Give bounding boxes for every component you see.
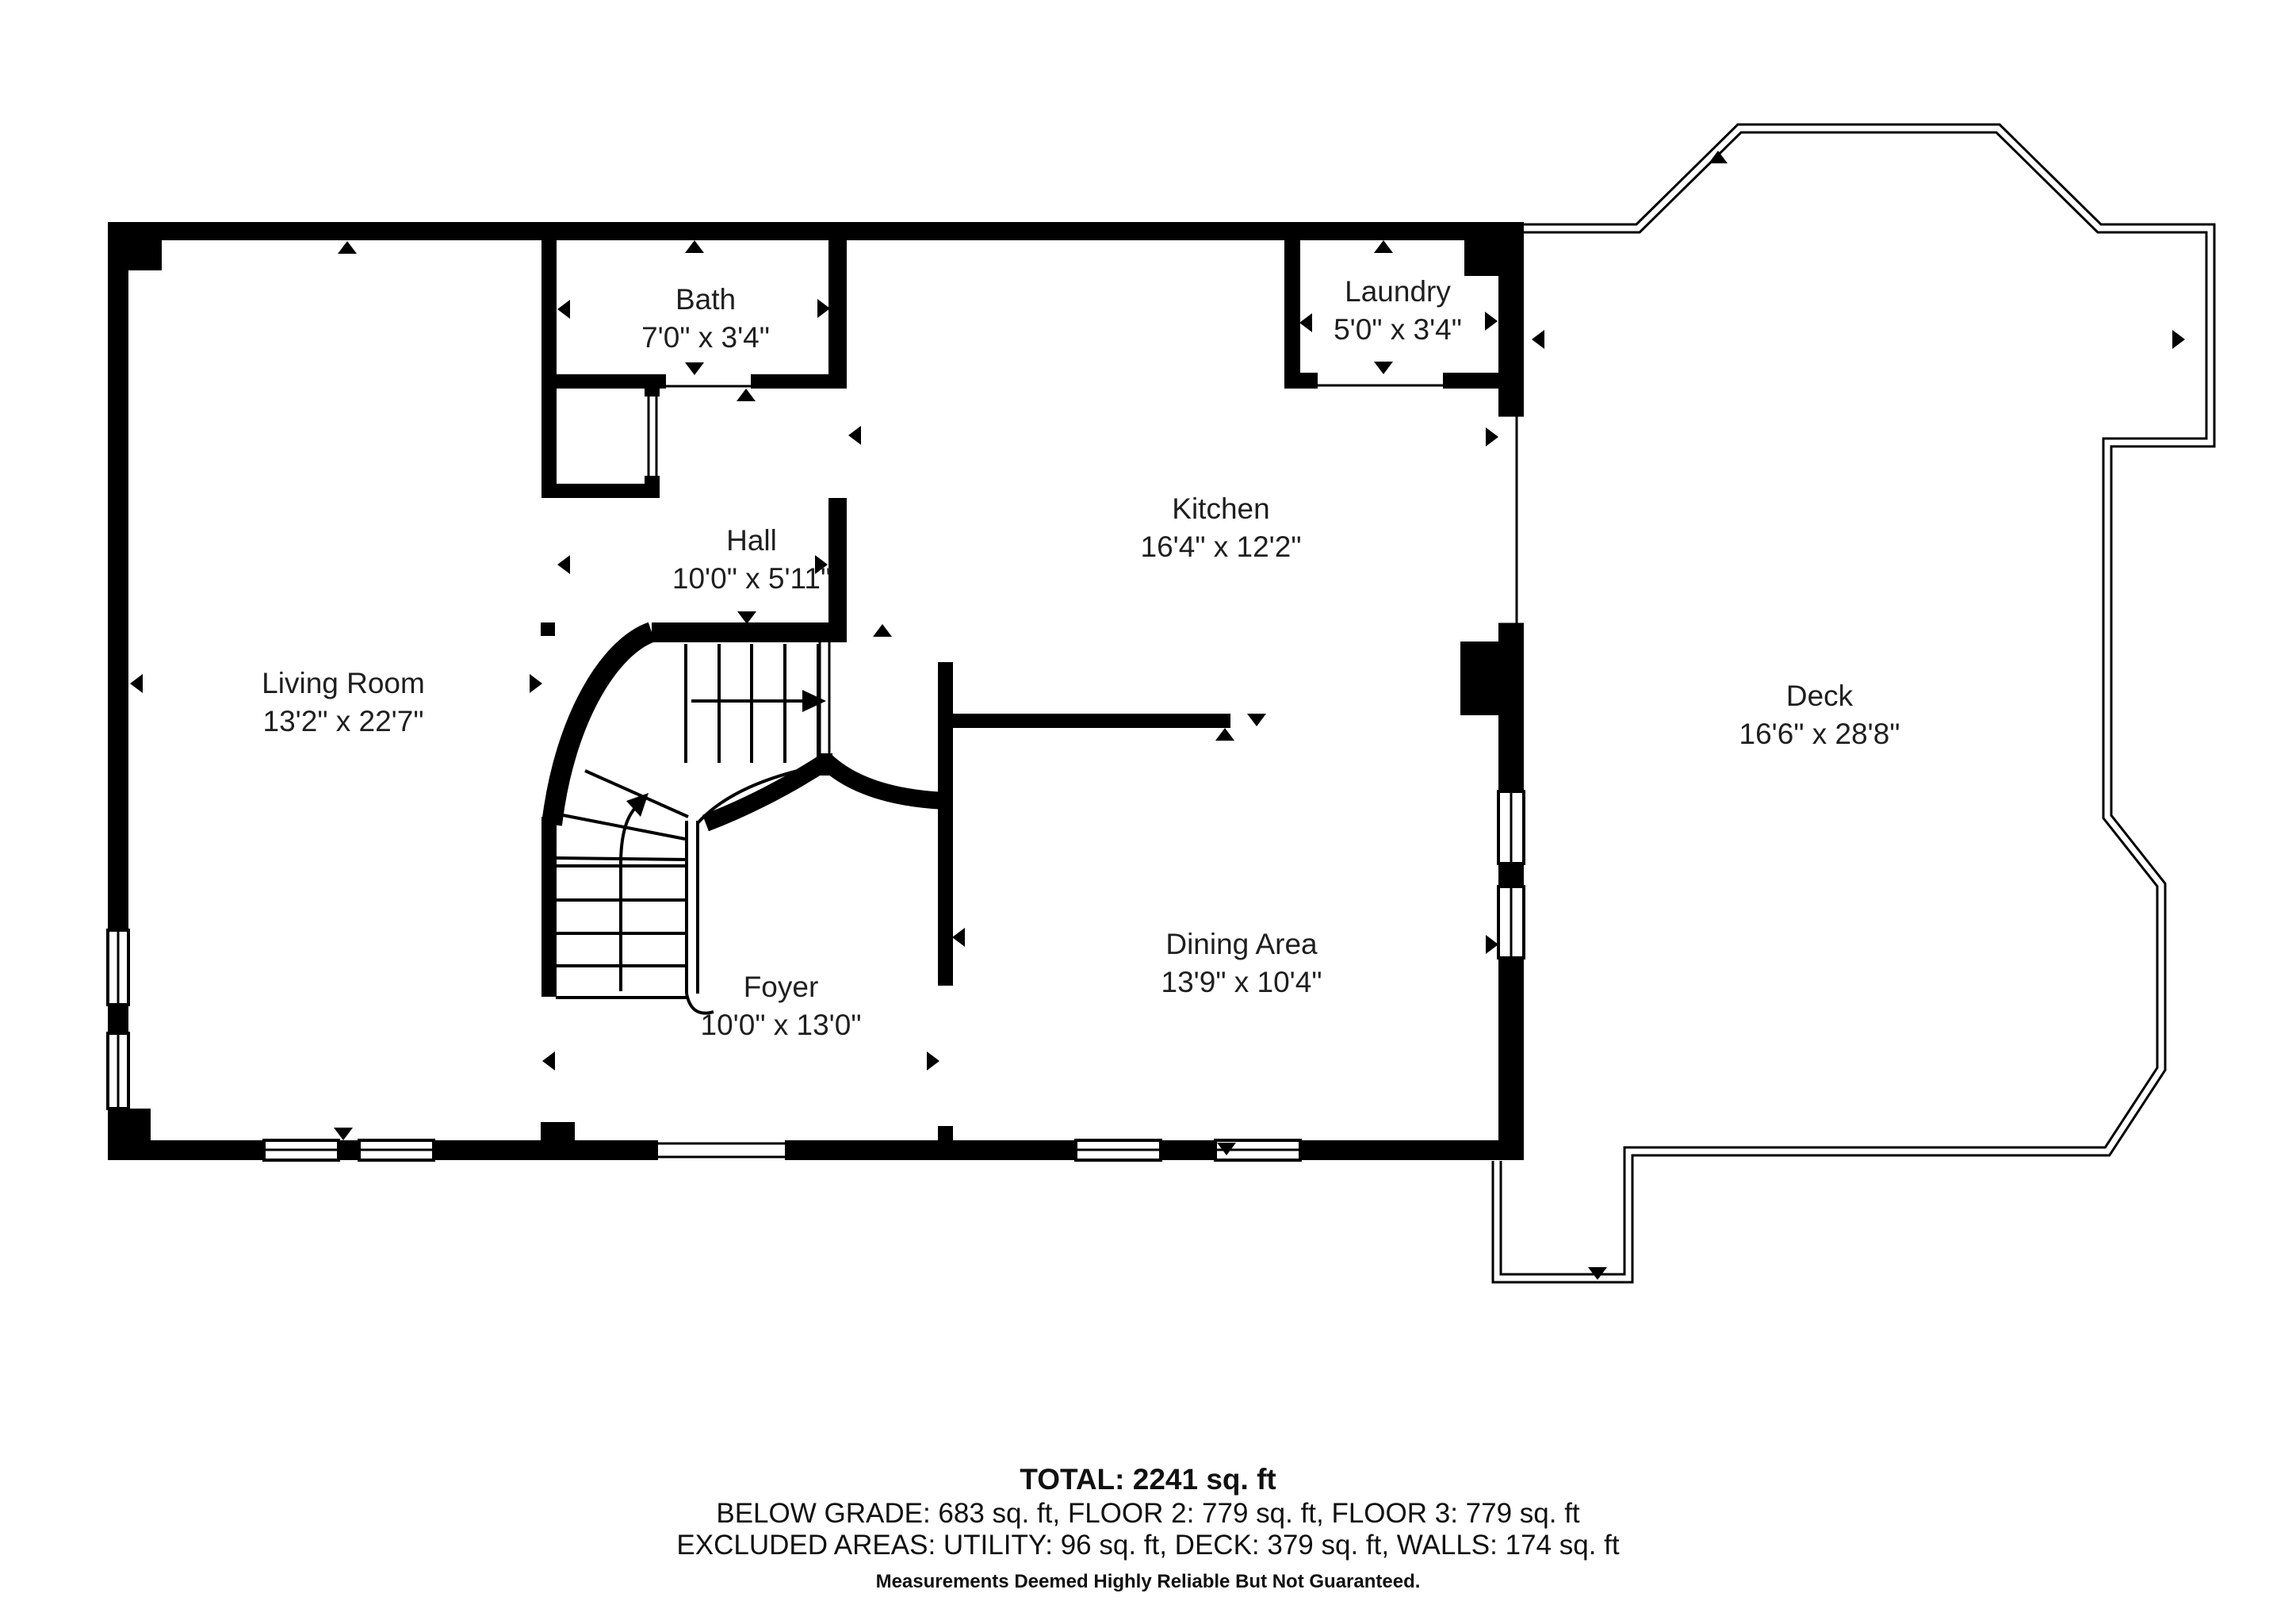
svg-text:7'0" x 3'4": 7'0" x 3'4" <box>641 321 770 354</box>
svg-text:13'2" x 22'7": 13'2" x 22'7" <box>263 705 424 737</box>
deck-outline <box>1497 128 2210 1278</box>
kitchen-wall-nub <box>1460 642 1498 715</box>
foyer-dining-wall-stub <box>938 1126 953 1140</box>
room-label-living-room: Living Room 13'2" x 22'7" <box>262 667 425 737</box>
window-dining-right-1 <box>1498 791 1524 864</box>
total-area-text: TOTAL: 2241 sq. ft <box>1020 1463 1276 1496</box>
svg-text:Deck: Deck <box>1786 680 1854 712</box>
room-label-bath: Bath 7'0" x 3'4" <box>641 283 770 354</box>
laundry-bottom-wall-right <box>1443 373 1498 389</box>
svg-text:16'4" x 12'2": 16'4" x 12'2" <box>1141 530 1302 563</box>
svg-text:Hall: Hall <box>726 524 777 557</box>
svg-text:Laundry: Laundry <box>1345 275 1451 308</box>
window-dining-right-2 <box>1498 887 1524 958</box>
svg-text:10'0" x 5'11": 10'0" x 5'11" <box>672 562 831 595</box>
window-livingroom-left-1 <box>108 930 128 1005</box>
svg-text:Foyer: Foyer <box>744 971 819 1003</box>
doors <box>649 385 1524 1160</box>
hall-right-wall-upper <box>828 240 847 389</box>
stair-arrow-head-upper <box>802 690 826 712</box>
corner-step-laundry <box>1464 240 1498 276</box>
stair-outer-curved-wall <box>552 632 652 825</box>
closet-bottom-wall <box>541 484 660 498</box>
foyer-dining-wall <box>938 662 953 986</box>
svg-text:Dining Area: Dining Area <box>1165 928 1318 960</box>
svg-text:Kitchen: Kitchen <box>1172 492 1269 525</box>
livingroom-foyer-stub <box>541 1122 575 1140</box>
stair-top-wall-stub <box>541 622 555 636</box>
svg-text:Bath: Bath <box>675 283 736 316</box>
window-livingroom-left-2 <box>108 1033 128 1109</box>
corner-step-bottom-left <box>128 1109 151 1142</box>
closet-door-jambs <box>649 396 656 476</box>
floorplan-page: Living Room 13'2" x 22'7" Bath 7'0" x 3'… <box>0 0 2296 1624</box>
svg-text:Living Room: Living Room <box>262 667 425 699</box>
footer: TOTAL: 2241 sq. ft BELOW GRADE: 683 sq. … <box>676 1463 1619 1592</box>
corner-step-top-left <box>128 240 162 270</box>
sliding-door-kitchen-deck <box>1498 416 1524 624</box>
stair-inner-curved-wall-east <box>826 761 945 801</box>
disclaimer-text: Measurements Deemed Highly Reliable But … <box>876 1571 1421 1592</box>
window-dining-bottom-1 <box>1076 1140 1161 1160</box>
front-door-opening <box>658 1140 785 1160</box>
stair-left-wall <box>541 817 557 997</box>
floorplan-svg: Living Room 13'2" x 22'7" Bath 7'0" x 3'… <box>0 0 2296 1624</box>
stair-inner-curved-wall-west <box>706 761 826 823</box>
svg-text:13'9" x 10'4": 13'9" x 10'4" <box>1161 966 1322 998</box>
room-label-laundry: Laundry 5'0" x 3'4" <box>1334 275 1462 346</box>
hall-right-wall-lower <box>828 498 847 642</box>
laundry-left-wall <box>1284 240 1300 389</box>
svg-text:16'6" x 28'8": 16'6" x 28'8" <box>1739 718 1900 750</box>
kitchen-dining-wall <box>953 714 1230 728</box>
stair-railing <box>687 821 698 994</box>
room-labels: Living Room 13'2" x 22'7" Bath 7'0" x 3'… <box>262 275 1900 1041</box>
excluded-areas-text: EXCLUDED AREAS: UTILITY: 96 sq. ft, DECK… <box>676 1530 1619 1561</box>
room-label-kitchen: Kitchen 16'4" x 12'2" <box>1141 492 1302 563</box>
svg-text:5'0" x 3'4": 5'0" x 3'4" <box>1334 313 1462 346</box>
closet-right-wall-bottom <box>645 476 660 498</box>
window-livingroom-bottom-1 <box>264 1140 339 1160</box>
room-label-deck: Deck 16'6" x 28'8" <box>1739 680 1900 750</box>
room-label-foyer: Foyer 10'0" x 13'0" <box>701 971 862 1041</box>
svg-text:10'0" x 13'0": 10'0" x 13'0" <box>701 1009 862 1041</box>
bath-bottom-wall-left <box>557 374 666 389</box>
laundry-bottom-wall-left <box>1284 373 1318 389</box>
room-label-hall: Hall 10'0" x 5'11" <box>672 524 831 595</box>
stair-kitchen-doorway <box>820 642 829 753</box>
bath-left-wall <box>541 240 557 498</box>
floor-areas-text: BELOW GRADE: 683 sq. ft, FLOOR 2: 779 sq… <box>716 1498 1580 1529</box>
room-label-dining-area: Dining Area 13'9" x 10'4" <box>1161 928 1322 998</box>
window-livingroom-bottom-2 <box>359 1140 434 1160</box>
stair-top-wall <box>652 622 831 642</box>
